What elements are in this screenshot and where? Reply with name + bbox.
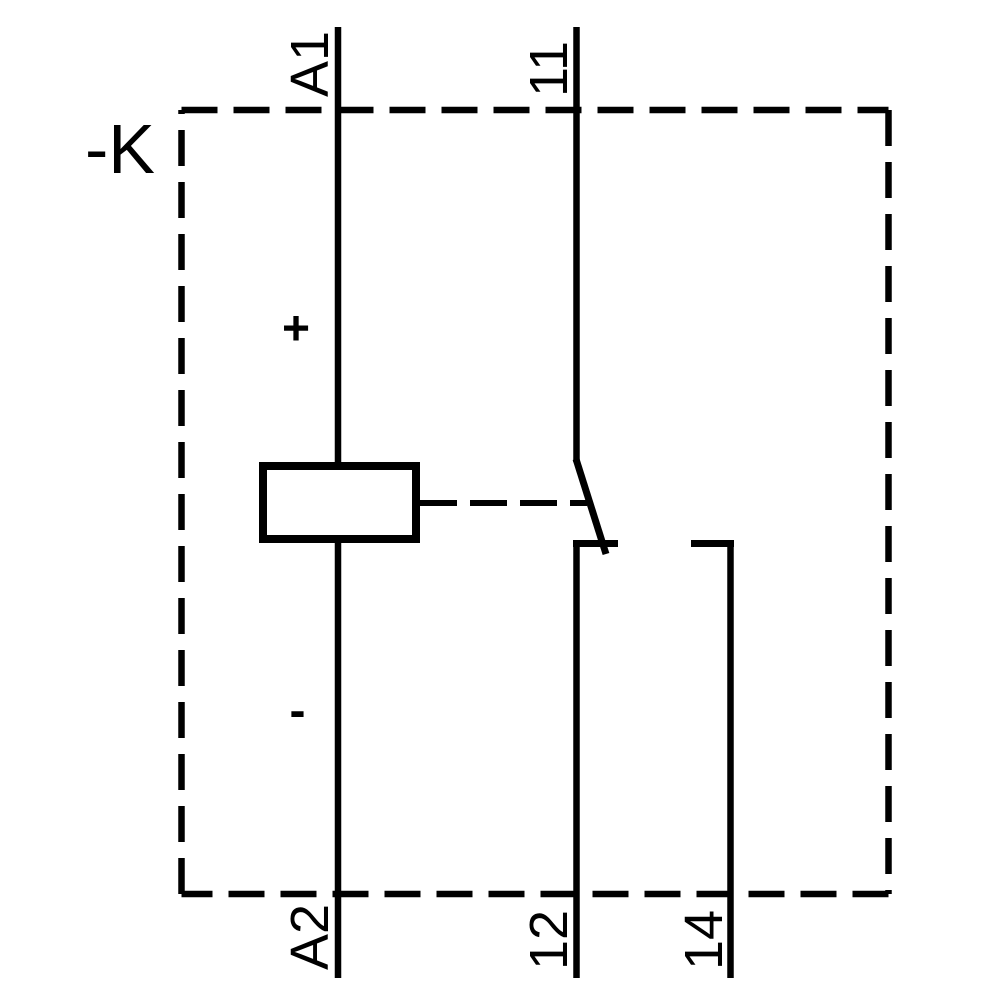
relay-schematic-drawing: -K A1 A2 11 12 14 + - xyxy=(0,0,1000,1000)
terminal-label-11: 11 xyxy=(519,41,579,97)
coil-symbol xyxy=(263,466,416,539)
polarity-minus-label: - xyxy=(290,685,306,738)
polarity-plus-label: + xyxy=(282,303,310,356)
relay-schematic-page: -K A1 A2 11 12 14 + - xyxy=(0,0,1000,1000)
terminal-label-14: 14 xyxy=(674,910,734,970)
terminal-label-12: 12 xyxy=(519,910,579,970)
terminal-label-a1: A1 xyxy=(280,31,340,97)
device-designation-label: -K xyxy=(85,110,155,188)
terminal-label-a2: A2 xyxy=(280,904,340,970)
